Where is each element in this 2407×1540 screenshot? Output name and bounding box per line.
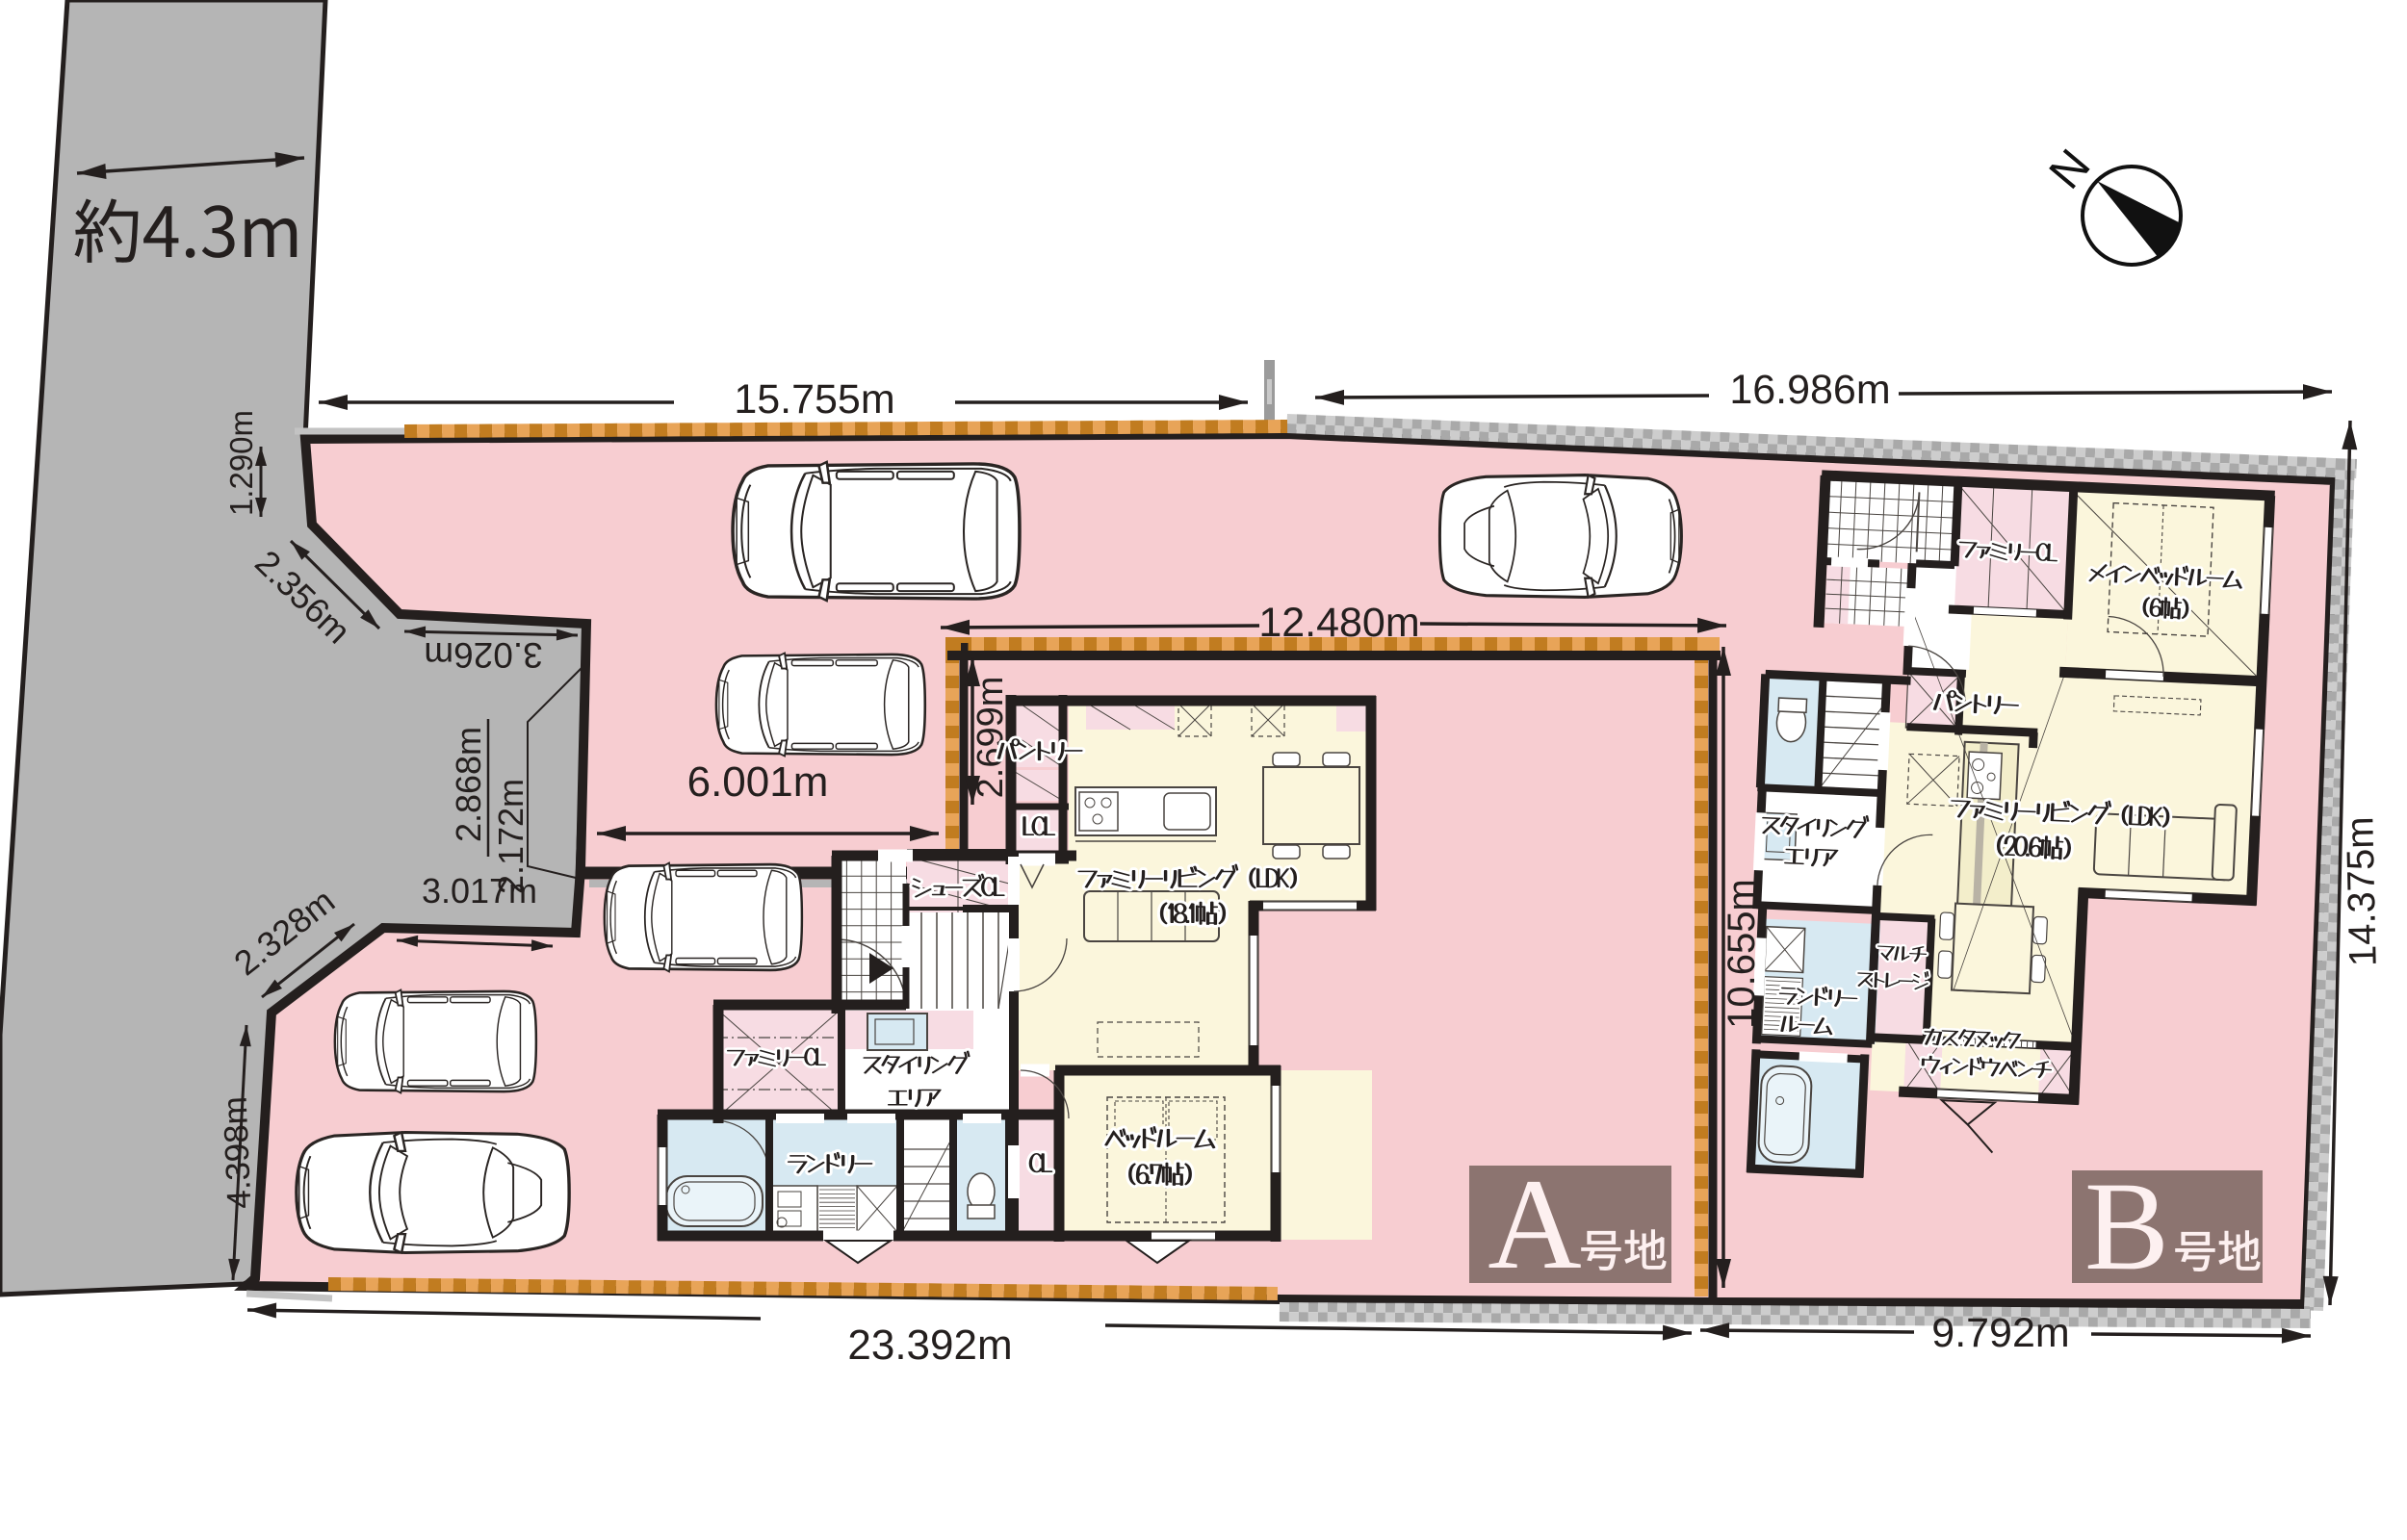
svg-text:6.001m: 6.001m xyxy=(687,758,829,806)
svg-text:3.017m: 3.017m xyxy=(422,871,537,911)
svg-text:16.986m: 16.986m xyxy=(1729,367,1890,413)
svg-text:2.868m: 2.868m xyxy=(449,727,488,842)
svg-text:1.290m: 1.290m xyxy=(223,410,259,516)
svg-text:10.655m: 10.655m xyxy=(1721,879,1763,1029)
svg-text:14.375m: 14.375m xyxy=(2339,816,2385,967)
svg-text:9.792m: 9.792m xyxy=(1931,1310,2069,1356)
svg-text:23.392m: 23.392m xyxy=(847,1322,1012,1369)
svg-text:B: B xyxy=(2084,1155,2169,1296)
svg-text:2.699m: 2.699m xyxy=(971,677,1011,799)
svg-text:3.026m: 3.026m xyxy=(424,635,542,675)
svg-text:A: A xyxy=(1488,1153,1582,1296)
svg-text:12.480m: 12.480m xyxy=(1258,600,1419,646)
svg-text:4.398m: 4.398m xyxy=(216,1095,258,1209)
svg-text:15.755m: 15.755m xyxy=(734,376,894,423)
